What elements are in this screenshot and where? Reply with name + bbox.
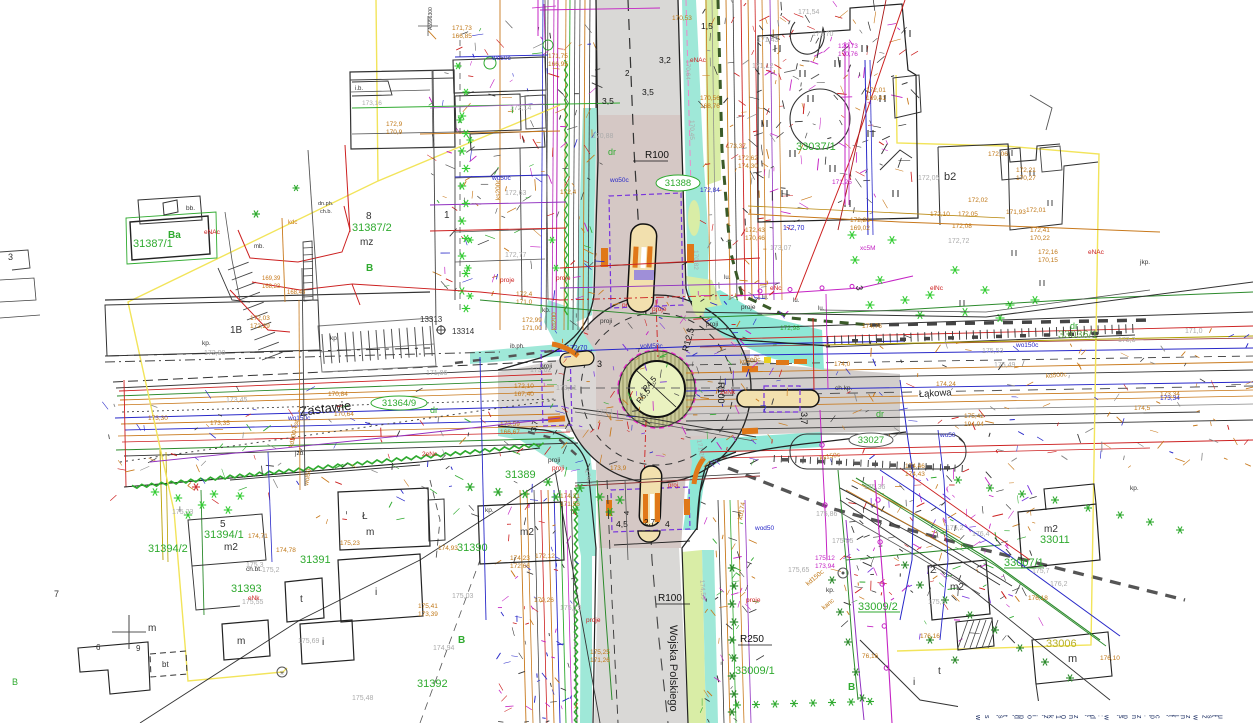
svg-text:Wojska Polskiego: Wojska Polskiego: [667, 625, 679, 712]
svg-text:174,21: 174,21: [560, 493, 580, 500]
svg-text:lu.: lu.: [818, 306, 825, 312]
svg-text:175,19: 175,19: [560, 605, 582, 612]
svg-text:bb.: bb.: [186, 205, 195, 212]
svg-text:Łąkowa: Łąkowa: [919, 387, 953, 400]
svg-text:R250: R250: [740, 634, 764, 645]
svg-text:172,01: 172,01: [1026, 207, 1046, 214]
svg-text:dn.ph.: dn.ph.: [318, 201, 334, 207]
svg-text:31389: 31389: [505, 469, 536, 481]
svg-text:dr: dr: [876, 409, 884, 419]
svg-text:proje: proje: [500, 277, 515, 284]
svg-text:170,9: 170,9: [386, 129, 403, 136]
svg-text:174,0: 174,0: [834, 361, 851, 368]
svg-text:kd200: kd200: [551, 312, 558, 330]
svg-text:kp.: kp.: [330, 335, 339, 342]
svg-text:1,5: 1,5: [701, 21, 713, 31]
svg-text:173,9: 173,9: [610, 465, 627, 472]
svg-text:33011: 33011: [1040, 534, 1070, 546]
svg-text:173,30: 173,30: [148, 415, 168, 422]
svg-text:kp.: kp.: [202, 340, 211, 347]
svg-text:B: B: [848, 682, 855, 693]
svg-text:170,15: 170,15: [1038, 257, 1058, 264]
svg-text:m2: m2: [520, 527, 534, 538]
svg-text:172,70: 172,70: [783, 225, 805, 232]
svg-text:174,43: 174,43: [905, 471, 925, 478]
svg-text:171,70: 171,70: [812, 31, 834, 38]
svg-text:172,12: 172,12: [535, 553, 555, 560]
svg-text:176,10: 176,10: [1100, 655, 1120, 662]
svg-text:✳: ✳: [279, 670, 284, 677]
svg-text:171,56: 171,56: [560, 501, 580, 508]
svg-text:194,04: 194,04: [964, 421, 984, 428]
svg-text:lu.: lu.: [724, 275, 731, 281]
svg-text:172,66: 172,66: [510, 563, 530, 570]
svg-text:168,23: 168,23: [262, 284, 281, 290]
svg-text:176,2: 176,2: [946, 525, 964, 532]
svg-text:171,12: 171,12: [752, 63, 774, 70]
svg-text:R100: R100: [645, 150, 669, 161]
svg-text:31388: 31388: [665, 178, 691, 189]
svg-text:175,65: 175,65: [788, 567, 810, 574]
svg-text:173,11: 173,11: [556, 385, 577, 392]
svg-text:170,76: 170,76: [838, 51, 858, 58]
svg-text:elNc: elNc: [930, 285, 944, 292]
svg-text:170,26: 170,26: [534, 597, 554, 604]
svg-text:proji: proji: [548, 457, 560, 464]
svg-text:172,62: 172,62: [738, 155, 758, 162]
svg-text:172,98: 172,98: [780, 325, 800, 332]
svg-text:172,14: 172,14: [510, 105, 532, 112]
svg-text:jkp.: jkp.: [1139, 259, 1150, 266]
svg-text:3: 3: [8, 252, 13, 262]
svg-text:R100: R100: [658, 593, 682, 604]
svg-text:172,63: 172,63: [505, 190, 527, 197]
svg-text:173,34: 173,34: [1160, 395, 1180, 402]
svg-text:bt: bt: [162, 660, 169, 669]
svg-text:m: m: [1068, 653, 1077, 665]
svg-text:172,06: 172,06: [988, 151, 1008, 158]
svg-text:B: B: [458, 635, 465, 646]
svg-text:175,03: 175,03: [452, 593, 474, 600]
svg-text:175,2: 175,2: [262, 567, 280, 574]
svg-text:174,30: 174,30: [738, 163, 758, 170]
svg-text:33009/1: 33009/1: [735, 665, 775, 677]
svg-text:172,41: 172,41: [1030, 227, 1050, 234]
svg-text:voM50c: voM50c: [640, 343, 664, 350]
svg-text:wo50c: wo50c: [491, 175, 512, 182]
svg-text:3,2: 3,2: [659, 55, 671, 65]
svg-text:31393: 31393: [231, 583, 262, 595]
svg-text:dr: dr: [1070, 321, 1078, 331]
svg-text:4: 4: [665, 519, 670, 529]
svg-text:B: B: [12, 677, 18, 687]
svg-text:172,05: 172,05: [958, 211, 978, 218]
svg-text:176,18: 176,18: [1028, 595, 1048, 602]
svg-text:t: t: [300, 594, 303, 605]
svg-text:172,29: 172,29: [250, 323, 270, 330]
svg-text:171,26: 171,26: [590, 657, 610, 664]
svg-text:171,54: 171,54: [798, 9, 820, 16]
svg-text:31391: 31391: [300, 554, 331, 566]
svg-text:170,84: 170,84: [328, 391, 348, 398]
svg-text:i: i: [375, 587, 377, 598]
svg-text:175,86: 175,86: [816, 511, 838, 518]
svg-text:wo50c: wo50c: [491, 55, 512, 62]
svg-text:170,46: 170,46: [745, 235, 765, 242]
svg-text:3,5: 3,5: [642, 87, 654, 97]
svg-text:eNAc: eNAc: [690, 57, 707, 64]
svg-text:171,0: 171,0: [1185, 328, 1203, 335]
svg-text:171,86: 171,86: [426, 370, 448, 377]
svg-text:172,9: 172,9: [386, 121, 403, 128]
svg-text:dr: dr: [430, 405, 438, 415]
svg-text:m: m: [148, 623, 156, 634]
svg-text:170,45: 170,45: [688, 120, 695, 140]
svg-text:173,1: 173,1: [596, 409, 614, 416]
svg-text:dr: dr: [608, 147, 616, 157]
svg-text:170,22: 170,22: [1030, 235, 1050, 242]
svg-text:7: 7: [54, 589, 59, 599]
svg-text:176,4: 176,4: [972, 531, 990, 538]
svg-text:t: t: [938, 666, 941, 677]
svg-text:3,7: 3,7: [799, 412, 809, 425]
svg-text:ch.kp.: ch.kp.: [835, 385, 853, 392]
svg-text:2,7: 2,7: [644, 518, 656, 527]
svg-text:170,56: 170,56: [700, 95, 720, 102]
svg-text:168,76: 168,76: [700, 103, 720, 110]
svg-text:31364/9: 31364/9: [382, 398, 416, 409]
svg-text:31387/1: 31387/1: [133, 238, 173, 250]
svg-text:175,7: 175,7: [1032, 568, 1050, 575]
svg-text:i.b.: i.b.: [355, 86, 363, 92]
svg-text:172,77: 172,77: [505, 252, 527, 259]
svg-text:172,10: 172,10: [930, 211, 950, 218]
svg-text:168,48: 168,48: [287, 290, 306, 296]
svg-text:170,64: 170,64: [334, 411, 354, 418]
svg-text:31392: 31392: [417, 678, 448, 690]
svg-text:170,27: 170,27: [1016, 175, 1036, 182]
svg-text:176,2: 176,2: [1050, 581, 1068, 588]
svg-text:8: 8: [366, 211, 372, 222]
svg-text:31394/2: 31394/2: [148, 543, 188, 555]
svg-text:1B: 1B: [230, 325, 243, 336]
svg-text:mz: mz: [360, 237, 373, 248]
svg-text:proje: proje: [586, 617, 601, 624]
svg-text:kp.: kp.: [542, 307, 551, 314]
svg-text:wo50: wo50: [939, 432, 956, 439]
svg-text:eNAc: eNAc: [1088, 249, 1105, 256]
svg-text:171,75: 171,75: [548, 53, 568, 60]
svg-text:xc5M: xc5M: [860, 245, 876, 252]
svg-text:172,21: 172,21: [1016, 167, 1036, 174]
svg-text:172,90: 172,90: [204, 350, 226, 357]
svg-text:175,42: 175,42: [964, 413, 984, 420]
svg-text:31387/2: 31387/2: [352, 222, 392, 234]
svg-text:176,16: 176,16: [920, 633, 940, 640]
svg-text:kp.: kp.: [1130, 485, 1139, 492]
svg-text:ib.ph.: ib.ph.: [510, 344, 525, 350]
svg-text:173,07: 173,07: [770, 245, 792, 252]
svg-text:proje: proje: [746, 597, 761, 604]
svg-text:6: 6: [96, 643, 101, 652]
svg-text:2eNk: 2eNk: [720, 389, 736, 396]
svg-text:Ba: Ba: [168, 230, 181, 241]
svg-text:173,39: 173,39: [418, 611, 438, 618]
svg-text:169,41: 169,41: [866, 95, 886, 102]
svg-text:175,53: 175,53: [982, 348, 1004, 355]
svg-text:kp.: kp.: [826, 587, 835, 594]
svg-text:175,12: 175,12: [815, 555, 835, 562]
svg-text:171,00: 171,00: [522, 325, 542, 332]
svg-text:ch.b.: ch.b.: [320, 209, 332, 215]
svg-text:proj.: proj.: [668, 483, 680, 489]
svg-text:33027: 33027: [858, 435, 884, 446]
svg-text:171,93: 171,93: [1006, 209, 1026, 216]
svg-text:m2: m2: [950, 582, 964, 593]
svg-text:b2: b2: [944, 171, 956, 183]
svg-text:proje: proje: [556, 275, 571, 282]
svg-text:kdc: kdc: [288, 220, 297, 226]
svg-text:174,23: 174,23: [510, 555, 530, 562]
svg-text:3: 3: [597, 359, 602, 369]
svg-text:31390: 31390: [457, 542, 488, 554]
svg-text:172,10: 172,10: [514, 383, 534, 390]
svg-text:175,25: 175,25: [590, 649, 610, 656]
svg-text:173,3: 173,3: [1118, 337, 1136, 344]
svg-text:175,36: 175,36: [864, 484, 886, 491]
svg-text:172,03: 172,03: [250, 315, 270, 322]
svg-text:A5996300: A5996300: [428, 7, 434, 30]
svg-text:175,48: 175,48: [352, 695, 374, 702]
svg-text:175,23: 175,23: [340, 540, 360, 547]
svg-text:wo150c: wo150c: [287, 415, 311, 422]
svg-text:171,73: 171,73: [452, 25, 472, 32]
svg-text:174,71: 174,71: [248, 533, 268, 540]
svg-text:173,02: 173,02: [530, 367, 552, 374]
svg-text:120,73: 120,73: [838, 43, 858, 50]
svg-text:174,46: 174,46: [905, 463, 925, 470]
svg-text:m: m: [366, 527, 374, 538]
svg-text:lu.: lu.: [762, 295, 769, 301]
svg-text:172,05: 172,05: [918, 175, 940, 182]
svg-text:1: 1: [444, 210, 450, 221]
svg-text:170,53: 170,53: [672, 15, 692, 22]
svg-text:175,41: 175,41: [418, 603, 438, 610]
svg-text:2: 2: [930, 565, 936, 576]
svg-text:173,94: 173,94: [815, 563, 835, 570]
svg-text:76,16: 76,16: [862, 653, 879, 660]
svg-text:i: i: [322, 637, 324, 648]
svg-text:172,08: 172,08: [952, 223, 972, 230]
svg-text:33006: 33006: [1046, 638, 1077, 650]
svg-text:wod50: wod50: [754, 525, 775, 532]
svg-text:m: m: [237, 636, 245, 647]
svg-text:170,82: 170,82: [692, 250, 699, 270]
svg-text:31394/1: 31394/1: [204, 529, 244, 541]
svg-text:proje: proje: [741, 304, 756, 311]
svg-text:174,78: 174,78: [276, 547, 296, 554]
svg-text:175,23: 175,23: [172, 509, 194, 516]
svg-text:13313: 13313: [420, 315, 443, 324]
svg-text:175,85: 175,85: [832, 538, 854, 545]
svg-text:B: B: [366, 263, 373, 274]
svg-text:167,40: 167,40: [514, 391, 534, 398]
svg-text:13314: 13314: [452, 327, 475, 336]
svg-text:wo50c: wo50c: [609, 177, 630, 184]
svg-text:174,94: 174,94: [433, 645, 455, 652]
svg-text:172,02: 172,02: [968, 197, 988, 204]
svg-text:172,84: 172,84: [700, 187, 720, 194]
svg-text:169,39: 169,39: [262, 276, 281, 282]
svg-text:172,21: 172,21: [850, 217, 870, 224]
svg-text:eNAc: eNAc: [204, 229, 221, 236]
svg-text:173,37: 173,37: [726, 143, 746, 150]
svg-text:172,4: 172,4: [560, 189, 577, 196]
svg-text:171,43: 171,43: [757, 37, 779, 44]
svg-text:175,49: 175,49: [994, 362, 1016, 369]
svg-text:173,45: 173,45: [226, 397, 248, 404]
svg-text:170,88: 170,88: [592, 133, 614, 140]
svg-text:i: i: [913, 677, 915, 688]
svg-text:33009/2: 33009/2: [858, 601, 898, 613]
svg-text:172,99: 172,99: [522, 317, 542, 324]
svg-text:proji: proji: [600, 318, 612, 325]
svg-text:175,5: 175,5: [928, 599, 946, 606]
svg-text:172,72: 172,72: [948, 238, 970, 245]
svg-text:174,5: 174,5: [1134, 405, 1151, 412]
svg-text:mb.: mb.: [254, 244, 264, 250]
svg-text:173,16: 173,16: [362, 100, 382, 107]
svg-text:174,93: 174,93: [438, 545, 458, 552]
svg-text:173,35: 173,35: [210, 420, 230, 427]
svg-text:eNc: eNc: [770, 285, 782, 292]
svg-text:eNk: eNk: [248, 595, 260, 602]
svg-text:171,25: 171,25: [832, 179, 852, 186]
svg-text:169,02: 169,02: [850, 225, 870, 232]
svg-text:166,67: 166,67: [500, 429, 520, 436]
svg-text:166,95: 166,95: [548, 61, 568, 68]
svg-text:m2: m2: [224, 542, 238, 553]
svg-text:174,24: 174,24: [936, 381, 956, 388]
svg-text:172,43: 172,43: [745, 227, 765, 234]
svg-text:2eNc: 2eNc: [422, 451, 438, 458]
svg-text:172,16: 172,16: [1038, 249, 1058, 256]
svg-text:lu.: lu.: [793, 298, 800, 304]
svg-text:9: 9: [136, 644, 141, 653]
svg-text:166,85: 166,85: [452, 33, 472, 40]
svg-text:3,5: 3,5: [602, 96, 614, 106]
svg-text:33037/1: 33037/1: [796, 141, 836, 153]
svg-text:wo150c: wo150c: [1015, 342, 1039, 349]
svg-text:kp.: kp.: [485, 507, 494, 514]
svg-text:172,01: 172,01: [866, 87, 886, 94]
svg-text:174,76: 174,76: [862, 323, 882, 330]
svg-text:2: 2: [625, 69, 630, 78]
svg-text:Ł: Ł: [362, 511, 368, 522]
svg-text:ch.bt.: ch.bt.: [246, 566, 262, 573]
svg-text:175,69: 175,69: [298, 638, 320, 645]
